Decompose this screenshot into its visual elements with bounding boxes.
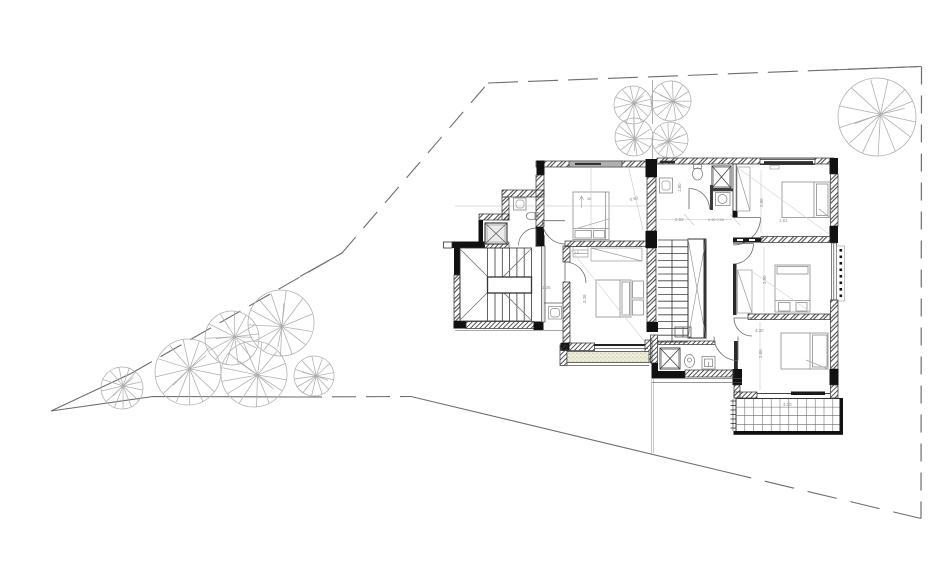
svg-text:0.30 0.65: 0.30 0.65 (708, 218, 724, 222)
svg-text:4.30: 4.30 (755, 328, 764, 333)
svg-text:2.02: 2.02 (675, 217, 684, 222)
svg-text:38: 38 (587, 197, 591, 201)
svg-text:1.80: 1.80 (677, 183, 682, 192)
svg-text:1.26: 1.26 (542, 285, 551, 290)
svg-text:2.80: 2.80 (762, 275, 767, 284)
svg-text:1.61: 1.61 (779, 218, 788, 223)
svg-text:0.6: 0.6 (574, 251, 579, 255)
svg-text:2.86: 2.86 (759, 198, 764, 207)
svg-text:3.38: 3.38 (582, 294, 587, 303)
svg-text:2.86: 2.86 (758, 349, 763, 358)
svg-text:3.00: 3.00 (783, 402, 792, 407)
